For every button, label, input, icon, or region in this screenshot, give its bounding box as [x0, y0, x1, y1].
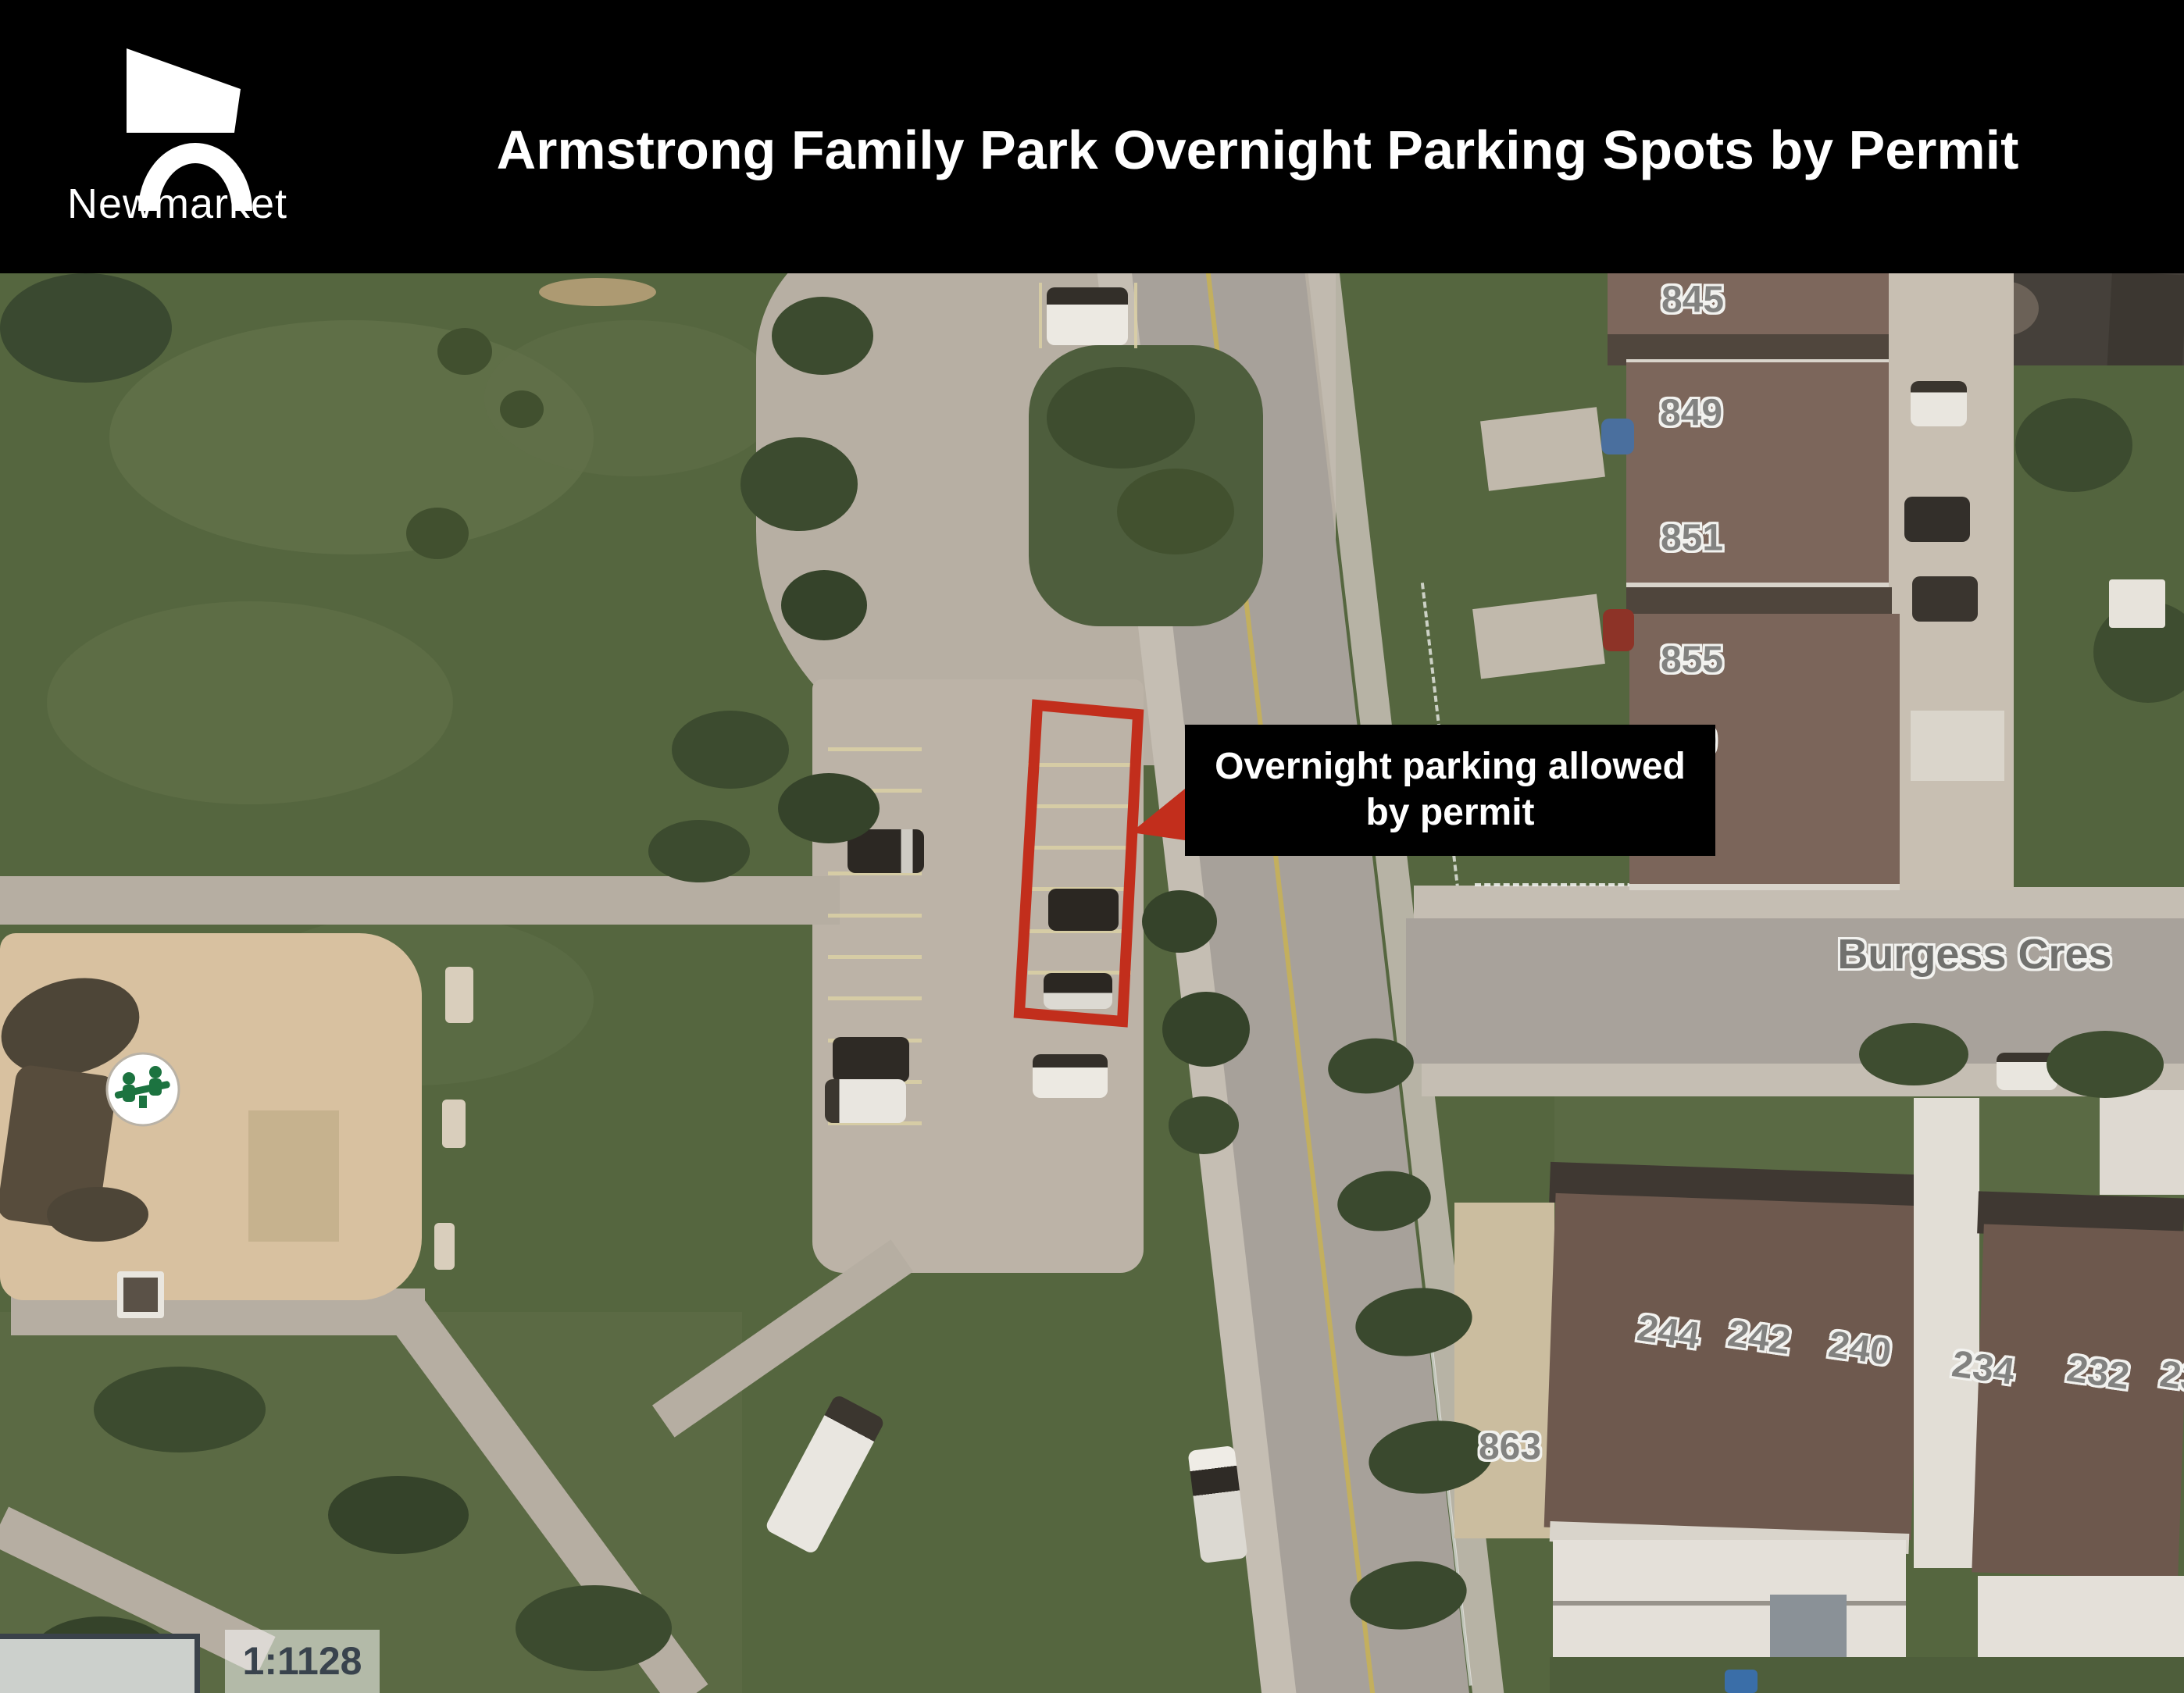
newmarket-logo-text: Newmarket: [67, 180, 287, 228]
page-title: Armstrong Family Park Overnight Parking …: [391, 119, 2125, 181]
house-number-855: 855: [1661, 639, 1723, 682]
bush: [1117, 469, 1234, 554]
roof-eave-shadow: [1626, 587, 1892, 615]
tree: [781, 570, 867, 640]
car: [764, 1394, 886, 1556]
patio: [1978, 1576, 2184, 1670]
house-number-234: 234: [1950, 1342, 2018, 1394]
tree: [740, 437, 858, 531]
house-number-240: 240: [1826, 1323, 1894, 1374]
tree: [1169, 1096, 1239, 1154]
car: [1912, 576, 1978, 622]
street-label-burgess-cres: Burgess Cres: [1837, 930, 2111, 978]
grass-patch: [47, 601, 453, 804]
house-number-232: 232: [2064, 1347, 2132, 1399]
tree: [94, 1367, 266, 1452]
car: [1603, 609, 1634, 651]
tree: [500, 390, 544, 428]
car: [1601, 419, 1634, 454]
tree: [0, 273, 172, 383]
roof-gutter: [1629, 884, 1900, 890]
house-roof-845: [1608, 273, 1889, 336]
shed: [1770, 1595, 1847, 1663]
bush: [1047, 367, 1195, 469]
car: [1033, 1054, 1108, 1098]
map-canvas: 845 849 851 855 859 863 244 242 240 234 …: [0, 273, 2184, 1693]
house-wall-863: [1454, 1203, 1554, 1538]
house-number-863: 863: [1479, 1426, 1541, 1469]
townhouse-roof-row: [1972, 1224, 2184, 1580]
shed: [2109, 579, 2165, 628]
driveway: [1480, 407, 1605, 491]
playground-gravel-pad: [248, 1110, 339, 1242]
tree: [772, 297, 873, 375]
curb-dashed-line: [1475, 883, 1653, 886]
car: [1911, 381, 1967, 426]
park-bench: [445, 967, 473, 1023]
scale-ratio-label: 1:1128: [225, 1630, 380, 1693]
car: [1047, 287, 1128, 345]
overnight-parking-callout: Overnight parking allowed by permit: [1185, 725, 1715, 856]
sidewalk: [1414, 886, 2184, 918]
tree: [778, 773, 880, 843]
walking-path: [0, 876, 840, 925]
fence-line: [1553, 1601, 1906, 1606]
tree: [328, 1476, 469, 1554]
house-number-849: 849: [1660, 392, 1722, 435]
playground-seesaw-icon: [105, 1052, 180, 1127]
car: [1904, 497, 1970, 542]
park-bench: [442, 1100, 466, 1148]
tree: [2015, 398, 2132, 492]
driveway: [1472, 594, 1605, 679]
back-lawn: [1550, 1657, 2184, 1693]
house-number-244: 244: [1635, 1306, 1703, 1358]
driveway: [1914, 1098, 1979, 1568]
header-bar: Newmarket Armstrong Family Park Overnigh…: [0, 0, 2184, 273]
tree: [406, 508, 469, 559]
callout-line-2: by permit: [1365, 790, 1534, 836]
house-number-845: 845: [1661, 279, 1724, 322]
patio: [1553, 1540, 1906, 1657]
dirt-patch: [539, 278, 656, 306]
newmarket-logo: Newmarket: [67, 31, 348, 250]
callout-line-1: Overnight parking allowed: [1215, 744, 1686, 790]
car: [825, 1079, 906, 1123]
scale-bar: [0, 1634, 200, 1693]
house-number-851: 851: [1661, 517, 1723, 560]
park-bench: [434, 1223, 455, 1270]
tree: [648, 820, 750, 882]
gazebo: [117, 1271, 164, 1318]
playground-equipment: [47, 1187, 148, 1242]
pool-object: [1725, 1670, 1758, 1693]
tree: [672, 711, 789, 789]
tree: [2047, 1031, 2164, 1098]
car: [833, 1037, 909, 1082]
patio: [1911, 711, 2004, 781]
tree: [516, 1585, 672, 1671]
house-number-242: 242: [1725, 1312, 1793, 1363]
permit-parking-outline: [1008, 695, 1211, 1039]
driveway: [2100, 1090, 2184, 1195]
tree: [1859, 1023, 1968, 1085]
page: 845 849 851 855 859 863 244 242 240 234 …: [0, 0, 2184, 1693]
tree: [437, 328, 492, 375]
